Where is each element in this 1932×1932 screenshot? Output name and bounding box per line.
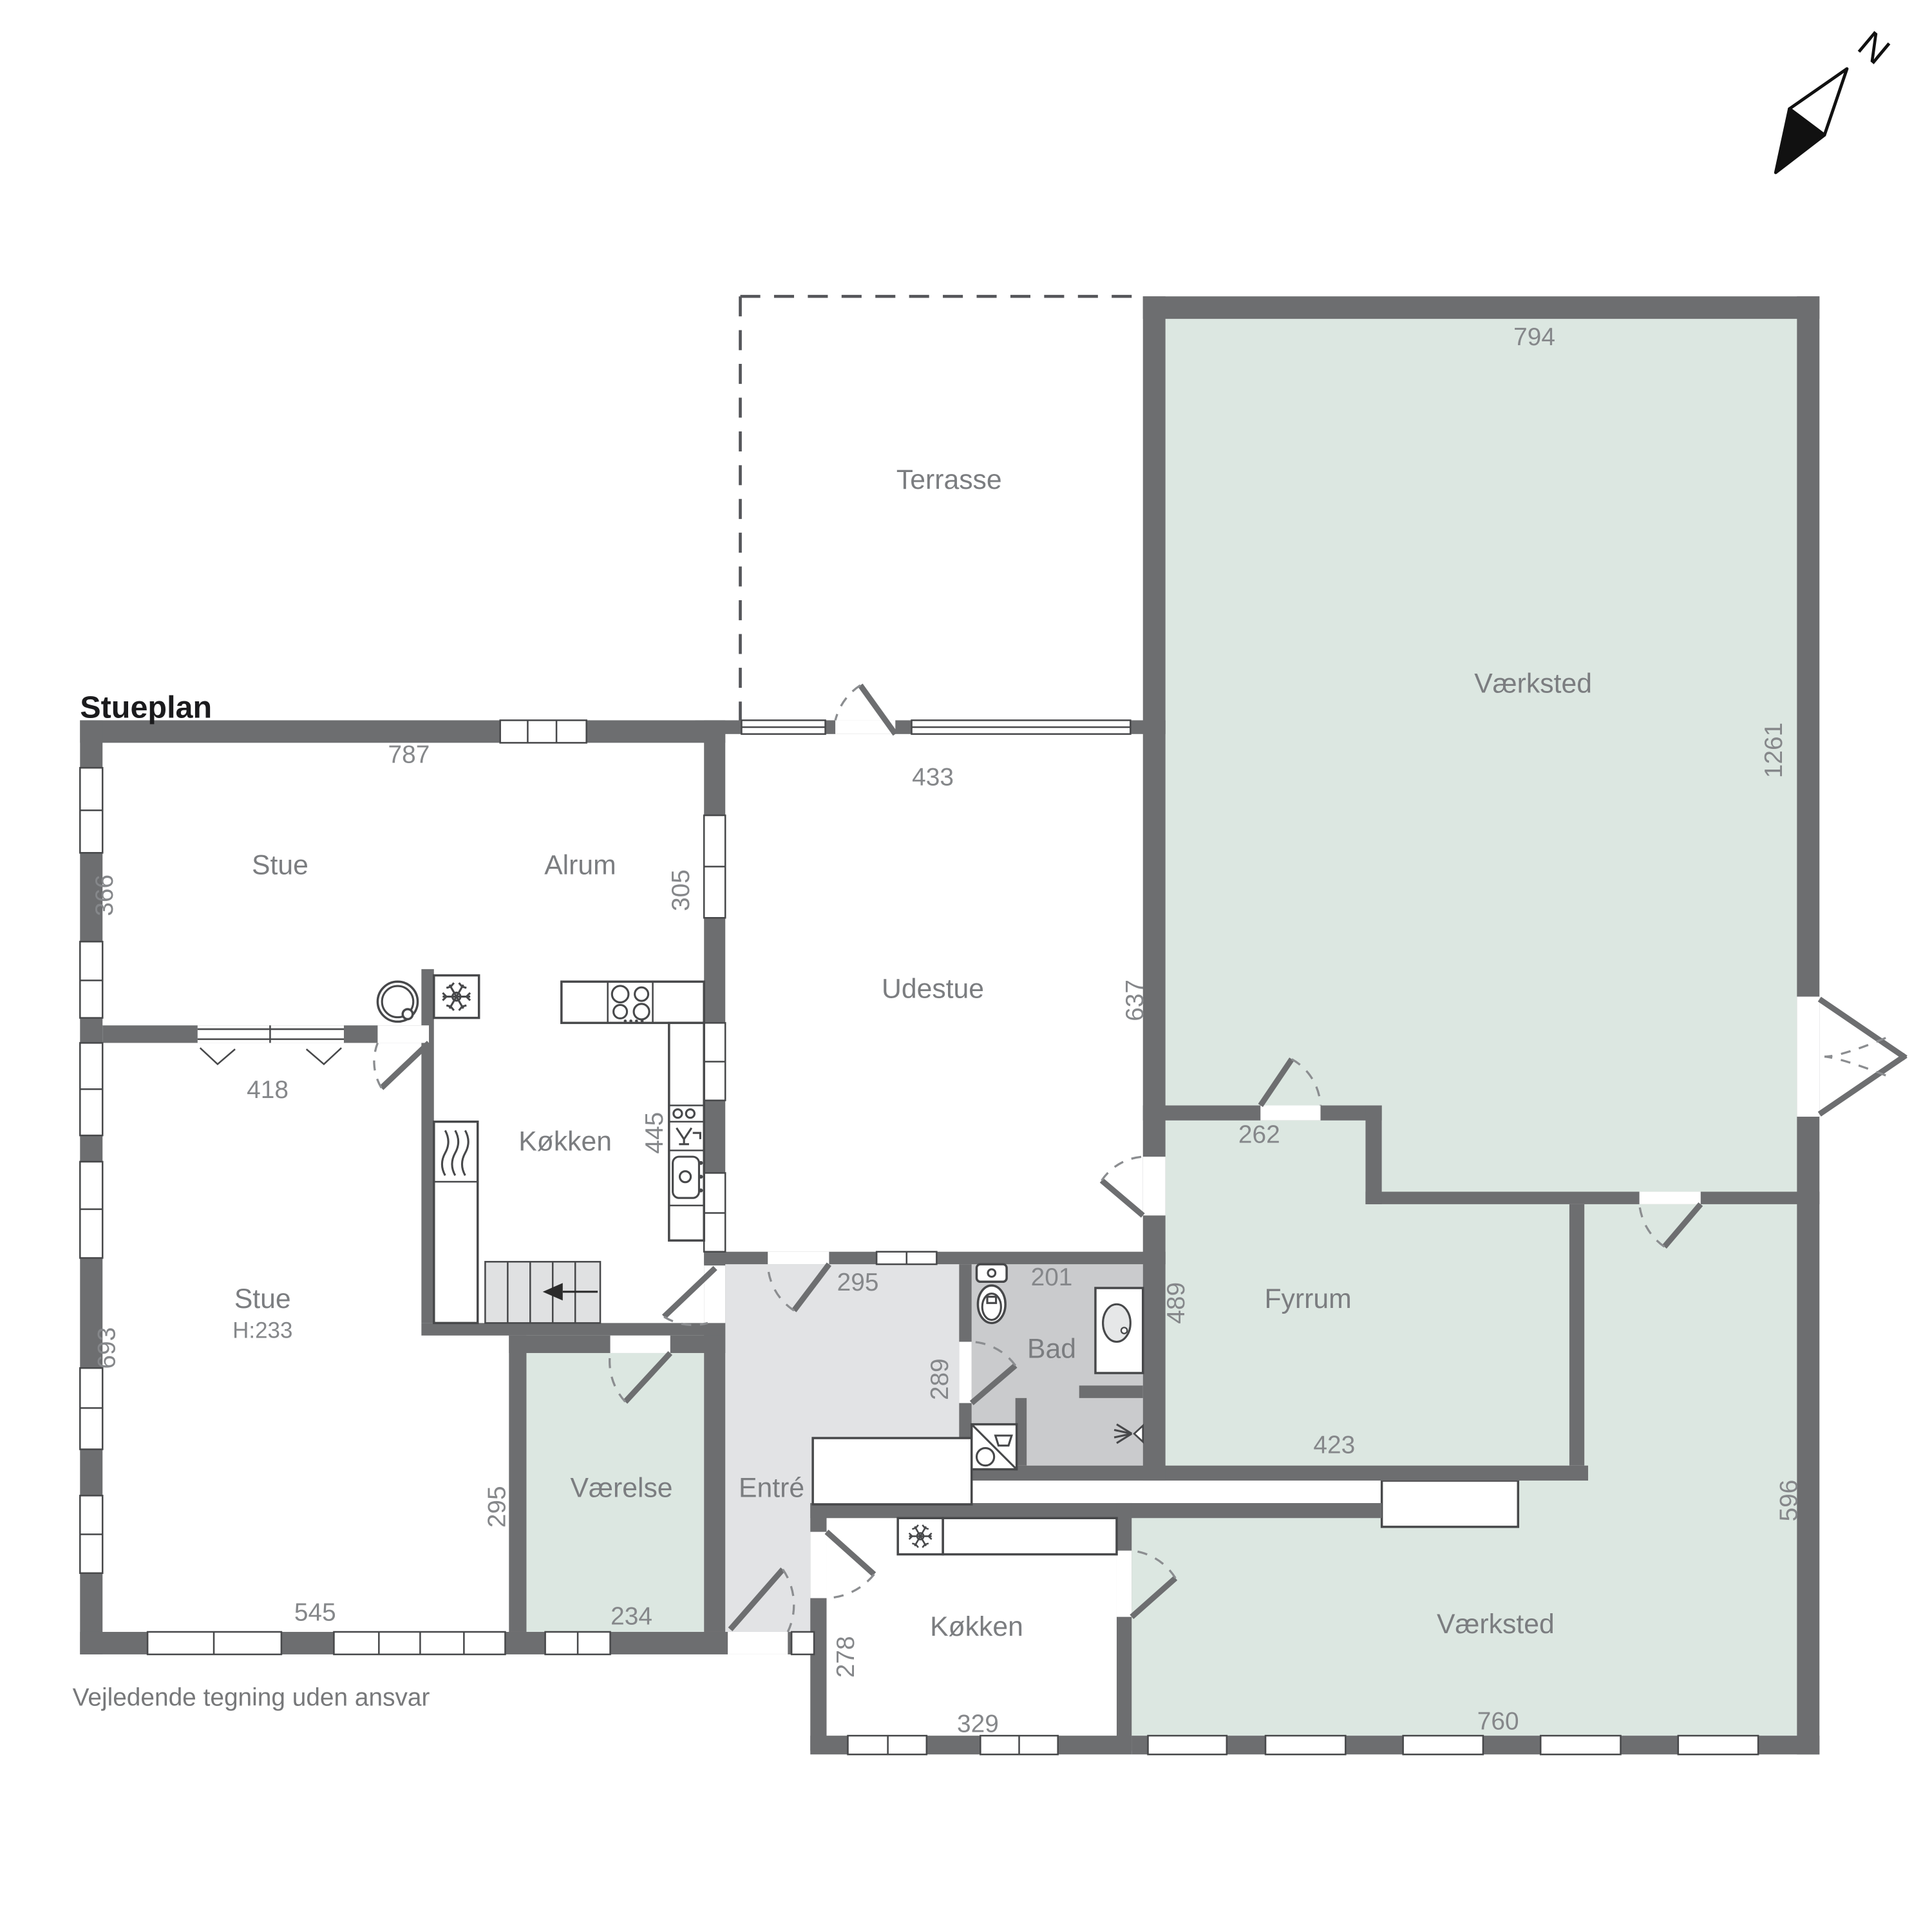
label-alrum: Alrum xyxy=(544,849,616,880)
dim-787: 787 xyxy=(388,741,430,768)
label-terrasse: Terrasse xyxy=(896,464,1002,495)
label-koekken-lower: Køkken xyxy=(930,1611,1023,1642)
dim-201: 201 xyxy=(1031,1264,1073,1291)
dim-262: 262 xyxy=(1238,1121,1280,1149)
dim-289: 289 xyxy=(926,1358,954,1400)
label-vaerksted-lower: Værksted xyxy=(1437,1609,1555,1640)
dim-545: 545 xyxy=(294,1599,336,1627)
koekken-lower-counter xyxy=(943,1518,1117,1554)
floor-plan-page: Terrasse Værksted Stue Alrum Udestue Køk… xyxy=(0,0,1932,1932)
dim-1261: 1261 xyxy=(1760,723,1788,778)
label-stue-lower-height: H:233 xyxy=(232,1318,292,1343)
label-stue-lower: Stue xyxy=(234,1283,291,1314)
toilet-icon xyxy=(977,1264,1007,1323)
dim-295-entre: 295 xyxy=(837,1269,879,1296)
dim-489: 489 xyxy=(1162,1282,1190,1324)
entre-wardrobe xyxy=(813,1438,972,1504)
label-vaerelse: Værelse xyxy=(571,1472,673,1503)
dim-234: 234 xyxy=(611,1602,652,1630)
label-bad: Bad xyxy=(1027,1334,1076,1365)
dim-418: 418 xyxy=(247,1076,289,1104)
koekken-lower-fixtures xyxy=(898,1518,1117,1554)
kitchen-counter xyxy=(562,981,704,1023)
washing-machine-icon xyxy=(972,1425,1017,1470)
dim-278: 278 xyxy=(832,1636,860,1678)
label-koekken: Køkken xyxy=(518,1126,612,1157)
dim-305: 305 xyxy=(667,869,695,911)
dim-445: 445 xyxy=(641,1112,668,1154)
stairs xyxy=(485,1262,600,1323)
dim-637: 637 xyxy=(1121,980,1149,1021)
disclaimer: Vejledende tegning uden ansvar xyxy=(73,1684,430,1712)
label-vaerksted-top: Værksted xyxy=(1474,668,1592,699)
page-title: Stueplan xyxy=(80,690,212,725)
dim-423: 423 xyxy=(1313,1431,1355,1459)
dim-366: 366 xyxy=(91,875,118,916)
dim-295-vaerelse: 295 xyxy=(483,1486,511,1528)
dim-433: 433 xyxy=(912,763,954,791)
dim-693: 693 xyxy=(93,1327,121,1369)
label-fyrrum: Fyrrum xyxy=(1264,1283,1351,1314)
boiler-icon xyxy=(377,981,417,1021)
kitchen-counter-column xyxy=(669,1023,704,1240)
floor-plan-canvas: Terrasse Værksted Stue Alrum Udestue Køk… xyxy=(0,0,1932,1932)
room-vaerksted-top xyxy=(1166,319,1797,1191)
dim-760: 760 xyxy=(1477,1707,1519,1735)
utility-unit xyxy=(1382,1481,1519,1527)
label-entre: Entré xyxy=(739,1472,804,1503)
washbasin-icon xyxy=(1095,1288,1143,1373)
label-stue-top: Stue xyxy=(252,849,308,880)
dim-794: 794 xyxy=(1513,323,1555,351)
label-udestue: Udestue xyxy=(882,974,984,1005)
dim-329: 329 xyxy=(957,1710,999,1738)
dim-596: 596 xyxy=(1775,1480,1803,1522)
